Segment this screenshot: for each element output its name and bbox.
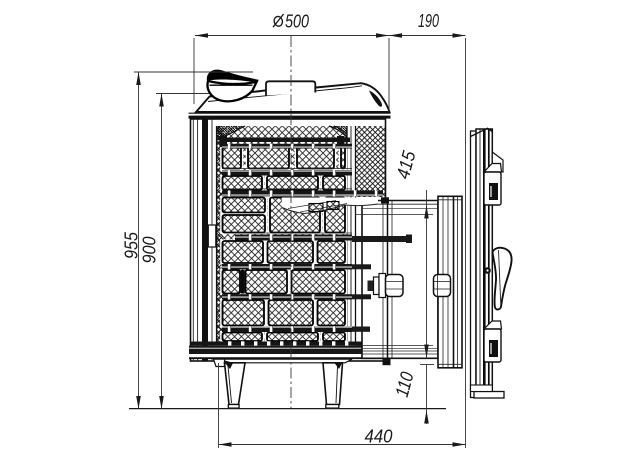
- svg-text:500: 500: [285, 11, 310, 32]
- svg-text:440: 440: [365, 426, 394, 447]
- svg-text:900: 900: [139, 236, 160, 264]
- svg-text:190: 190: [418, 10, 439, 31]
